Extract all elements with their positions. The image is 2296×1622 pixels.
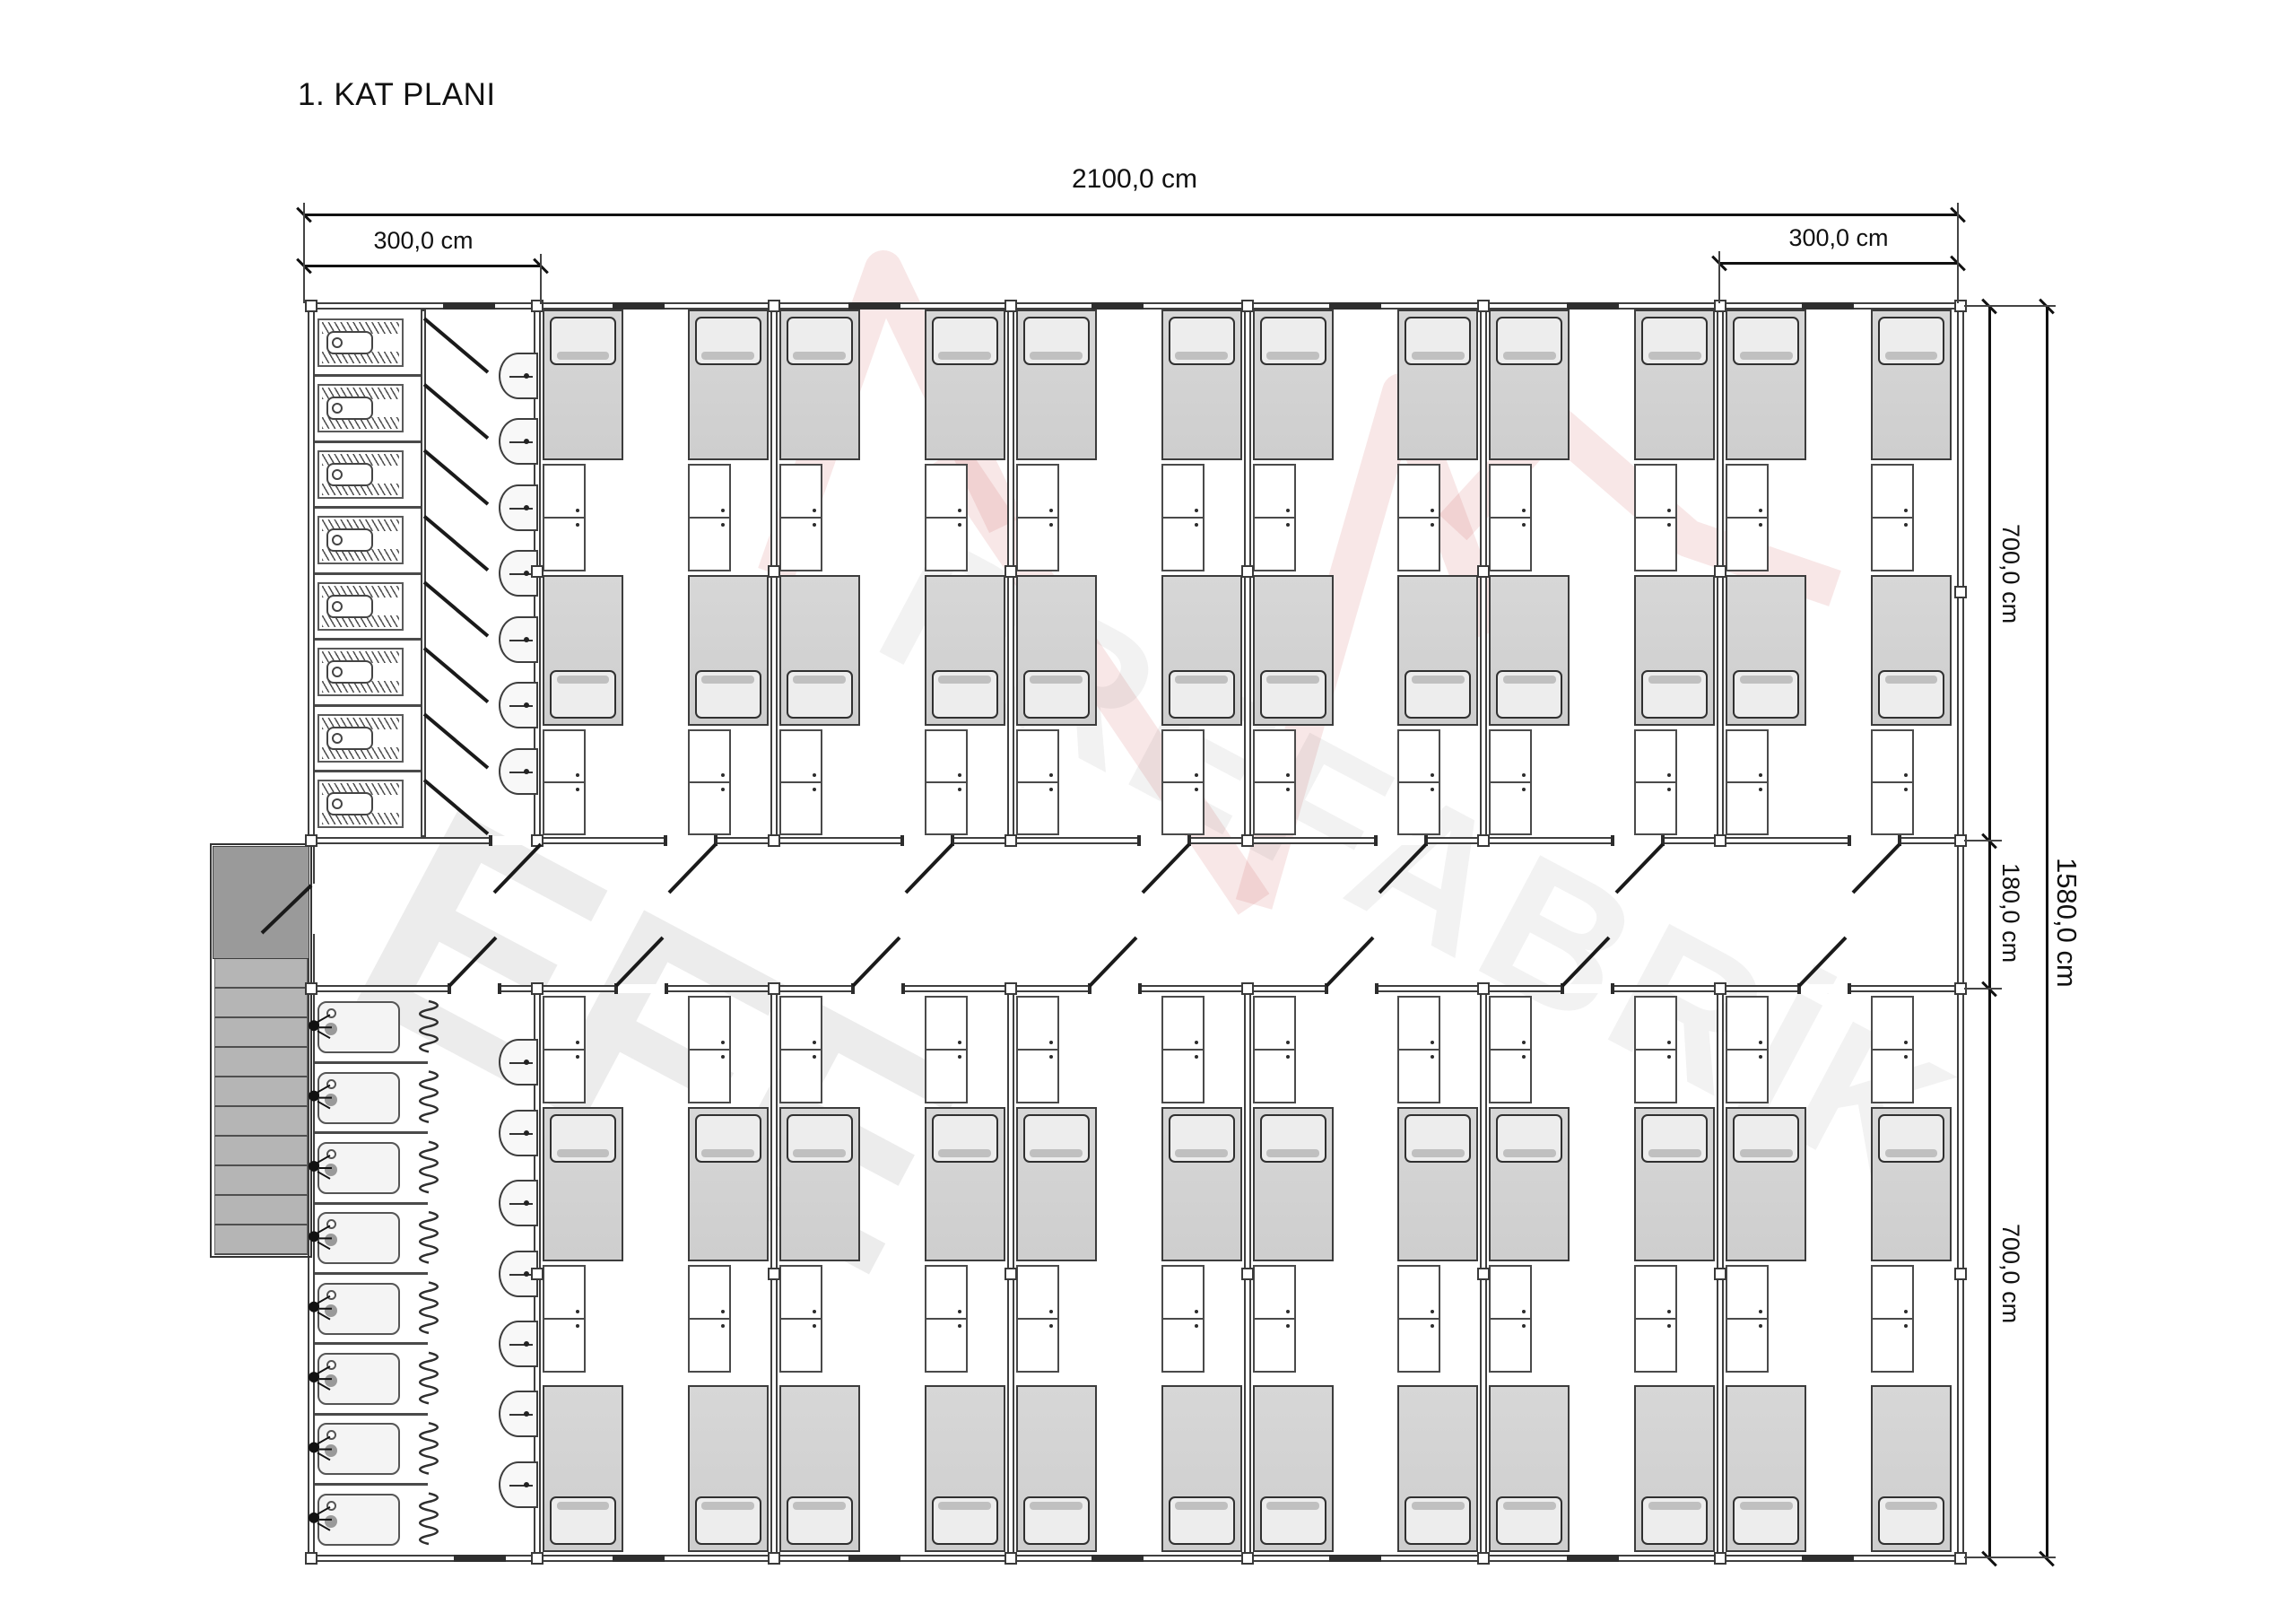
pillow-shade [793,676,846,684]
wardrobe-divider [1163,781,1203,783]
pillow-shade [1885,676,1938,684]
window [848,1555,900,1562]
wardrobe-handle [1522,773,1526,777]
wardrobe-divider [1636,781,1675,783]
door-opening [449,984,500,993]
toilet-icon [317,384,404,432]
wardrobe [779,996,822,1103]
wardrobe [925,996,968,1103]
wardrobe [1871,1265,1914,1373]
pillow-shade [557,1502,610,1510]
wall-post [305,834,317,847]
wardrobe-divider [1727,517,1767,519]
wardrobe [779,1265,822,1373]
wardrobe-divider [1873,517,1912,519]
window [443,302,495,310]
wardrobe-handle [1195,773,1198,777]
dim-right-module-width: 300,0 cm [1721,224,1956,252]
wardrobe-divider [1873,1318,1912,1320]
wardrobe [543,996,586,1103]
window [1091,302,1144,310]
pillow-shade [793,1149,846,1157]
pillow-shade [557,676,610,684]
sink-tap [524,1482,529,1487]
shower-tray-detail [326,1290,336,1300]
pillow [787,1496,853,1545]
shower-tray-detail [325,1164,337,1176]
pillow-shade [1503,352,1556,360]
wardrobe-divider [1255,517,1294,519]
wardrobe-handle [813,1055,816,1059]
wardrobe-handle [1522,523,1526,527]
bed [1871,575,1952,726]
pillow-shade [1266,1502,1319,1510]
wardrobe [925,1265,968,1373]
pillow [1405,317,1471,365]
wardrobe [1726,729,1769,835]
wardrobe-handle [958,773,961,777]
wardrobe-divider [1163,517,1203,519]
wardrobe-handle [576,1310,579,1313]
extension-line [1964,1557,2056,1558]
pillow [1733,1496,1799,1545]
pillow [1878,1114,1944,1163]
wardrobe-handle [1195,1055,1198,1059]
wall-post [1477,982,1490,995]
wardrobe-handle [1522,1324,1526,1328]
pillow-shade [701,352,754,360]
wall-post [1954,1268,1967,1280]
wardrobe-divider [690,781,729,783]
wardrobe-handle [1195,523,1198,527]
stall-divider [315,1483,428,1486]
wardrobe-handle [1431,1310,1434,1313]
dim-top-wing-depth: 700,0 cm [1996,447,2024,702]
wardrobe-handle [576,773,579,777]
wardrobe [1634,464,1677,571]
sink-tap [509,1203,533,1205]
extension-line [1718,251,1720,303]
pillow-shade [1266,352,1319,360]
wall-post [1714,834,1726,847]
wardrobe-handle [721,773,725,777]
wardrobe-handle [1049,1041,1053,1044]
pillow-shade [1412,676,1465,684]
wardrobe-divider [1636,1049,1675,1051]
pillow [1641,1114,1708,1163]
window [613,302,665,310]
sink-tap [509,1133,533,1135]
bed [779,310,860,460]
bed [1634,1385,1715,1552]
shower-tray-detail [325,1444,337,1457]
pillow [1496,1496,1562,1545]
door-jamb [1424,835,1428,846]
stall-divider [315,1342,428,1345]
wardrobe [1871,729,1914,835]
wardrobe-divider [1163,1318,1203,1320]
pillow-shade [1740,1149,1793,1157]
wardrobe-handle [1431,1041,1434,1044]
wardrobe-handle [813,509,816,512]
pillow-shade [1175,676,1228,684]
wardrobe-divider [926,1049,966,1051]
pillow [1405,1496,1471,1545]
sink-icon [499,353,538,399]
sink-tap [524,373,529,379]
door-opening [1139,836,1189,845]
wardrobe [1871,996,1914,1103]
bed [543,310,623,460]
pillow-shade [1030,1149,1083,1157]
pillow [787,1114,853,1163]
wardrobe-handle [1667,788,1671,791]
pillow [695,1114,761,1163]
door-opening [1090,984,1140,993]
dimension-line-left-module [304,265,541,267]
wardrobe-divider [1018,781,1057,783]
pillow [550,670,616,719]
pillow [1169,670,1235,719]
shower-tray-detail [326,1360,336,1370]
wardrobe-handle [813,788,816,791]
sink-icon [499,418,538,465]
stair-tread [214,1166,308,1196]
pillow [1169,1496,1235,1545]
shower-tray-detail [326,1430,336,1440]
sink-icon [499,1110,538,1156]
bed [688,1385,769,1552]
wardrobe-handle [1049,788,1053,791]
wardrobe-handle [1904,788,1908,791]
shower-tray-detail [326,1149,336,1159]
stair-tread [214,989,308,1018]
wall-post [531,565,544,578]
wall-post [1477,300,1490,312]
wardrobe [1016,1265,1059,1373]
wall-post [531,982,544,995]
pillow-shade [1030,676,1083,684]
floor-plan-canvas: 1. KAT PLANI EFE PREFABRİK 2100,0 cm 300… [0,0,2296,1622]
wardrobe-handle [1667,1310,1671,1313]
pillow-shade [1885,1502,1938,1510]
pillow [1641,317,1708,365]
door-jamb [1611,983,1614,994]
pillow-shade [1648,1502,1701,1510]
wardrobe-handle [721,509,725,512]
pillow [1260,317,1326,365]
wall-post [768,982,780,995]
bed [1397,1385,1478,1552]
wardrobe-handle [1049,1055,1053,1059]
sink-icon [499,1321,538,1367]
wardrobe-handle [1049,1310,1053,1313]
bed [1489,575,1570,726]
pillow-shade [938,352,991,360]
stall-divider [315,638,421,641]
wardrobe-divider [926,517,966,519]
toilet-icon [317,450,404,499]
door-jamb [851,983,855,994]
shower-tray-detail [325,1234,337,1246]
wall-post [1241,982,1254,995]
stall-divider [315,1131,428,1134]
pillow-shade [1175,1502,1228,1510]
pillow [1023,1114,1090,1163]
sink-tap [524,1060,529,1065]
shower-tray-detail [325,1023,337,1035]
shower-tray-detail [326,1079,336,1089]
wardrobe-divider [1399,781,1439,783]
pillow-shade [701,1502,754,1510]
wardrobe-divider [1255,1318,1294,1320]
pillow [1260,1114,1326,1163]
wardrobe-handle [1049,509,1053,512]
stair-tread [214,959,308,989]
pillow-shade [557,1149,610,1157]
wall-post [1714,1268,1726,1280]
wardrobe-handle [1667,1055,1671,1059]
wall-post [1714,1552,1726,1565]
wardrobe-handle [576,509,579,512]
bed [1726,1385,1806,1552]
pillow-shade [1030,1502,1083,1510]
sink-icon [499,682,538,728]
sink-tap [524,702,529,708]
bed [779,1385,860,1552]
wall-post [305,300,317,312]
wardrobe-handle [1286,788,1290,791]
wall-post [768,834,780,847]
bed [779,575,860,726]
pillow-shade [938,676,991,684]
sink-tap [509,1274,533,1276]
wardrobe-handle [1759,1324,1762,1328]
sink-tap [509,1062,533,1064]
bed [1253,575,1334,726]
door-opening [902,836,952,845]
wardrobe-handle [1286,509,1290,512]
wardrobe [925,729,968,835]
wardrobe-divider [544,1318,584,1320]
pillow [1260,670,1326,719]
pillow [1733,1114,1799,1163]
wardrobe [1397,996,1440,1103]
extension-line [1964,305,2056,307]
wardrobe-handle [1759,509,1762,512]
door-jamb [664,835,667,846]
door-jamb [1088,983,1091,994]
stall-divider [315,770,421,772]
bed [1161,1107,1242,1261]
door-jamb [900,835,904,846]
wardrobe-divider [1636,1318,1675,1320]
wall-post [1714,300,1726,312]
wardrobe-handle [813,1041,816,1044]
pillow [1733,317,1799,365]
sink-tap [509,441,533,443]
wardrobe-handle [1431,523,1434,527]
stair-tread [214,1048,308,1077]
shower-tray-icon [317,1212,400,1264]
wardrobe-handle [958,1324,961,1328]
wardrobe-handle [1195,1041,1198,1044]
wardrobe-handle [1431,1324,1434,1328]
pillow-shade [1740,1502,1793,1510]
door-jamb [498,983,501,994]
wardrobe [1871,464,1914,571]
door-opening [1613,836,1663,845]
wardrobe [543,729,586,835]
door-opening [1562,984,1613,993]
bed [1016,1385,1097,1552]
dim-total-width: 2100,0 cm [969,164,1300,195]
dim-bottom-wing-depth: 700,0 cm [1996,1147,2024,1401]
bed [1871,1385,1952,1552]
door-jamb [1661,835,1665,846]
stair-landing [213,846,309,959]
bed [1634,575,1715,726]
wardrobe [1489,729,1532,835]
toilet-detail [332,337,343,348]
wall-post [1477,834,1490,847]
wardrobe [1397,464,1440,571]
wardrobe-divider [781,517,821,519]
pillow [695,1496,761,1545]
shower-tray-icon [317,1072,400,1124]
shower-tray-icon [317,1001,400,1053]
bed [543,1385,623,1552]
wardrobe [1161,996,1205,1103]
sink-tap [524,1130,529,1136]
stall-divider [315,572,421,575]
wardrobe-handle [1431,1055,1434,1059]
sink-tap [524,1411,529,1417]
stair-tread [214,1107,308,1137]
wardrobe-handle [1431,788,1434,791]
wardrobe-divider [1727,781,1767,783]
pillow-shade [1175,352,1228,360]
wall-post [1004,565,1017,578]
shower-tray-icon [317,1353,400,1405]
wardrobe-handle [1195,1324,1198,1328]
wardrobe [1161,1265,1205,1373]
wall-post [1004,300,1017,312]
bed [779,1107,860,1261]
wall-post [1714,982,1726,995]
sink-tap [509,705,533,707]
extension-line [1957,203,1959,303]
wall-post [1004,982,1017,995]
door-jamb [1374,835,1378,846]
wall-post [1241,1552,1254,1565]
sink-icon [499,1039,538,1086]
pillow [1169,1114,1235,1163]
pillow [787,317,853,365]
wardrobe-handle [1667,509,1671,512]
wardrobe-handle [813,1324,816,1328]
bed [1161,1385,1242,1552]
pillow [1878,1496,1944,1545]
pillow-shade [1412,352,1465,360]
pillow-shade [1740,352,1793,360]
wardrobe [1489,1265,1532,1373]
bed [1634,310,1715,460]
wall-post [1714,565,1726,578]
pillow [1733,670,1799,719]
bed [1161,575,1242,726]
bed [1726,310,1806,460]
pillow [932,1114,998,1163]
bed [1634,1107,1715,1261]
door-jamb [448,983,451,994]
window [1329,1555,1381,1562]
pillow [932,317,998,365]
pillow [1405,670,1471,719]
wall-post [1004,834,1017,847]
wardrobe-handle [721,523,725,527]
wall-post [1241,1268,1254,1280]
sink-tap [509,772,533,773]
wardrobe-divider [1399,517,1439,519]
wardrobe-handle [1286,1041,1290,1044]
wardrobe-handle [721,1310,725,1313]
bed [1253,1107,1334,1261]
wardrobe-handle [1049,523,1053,527]
wardrobe-handle [958,509,961,512]
pillow-shade [1648,676,1701,684]
shower-tray-detail [325,1094,337,1106]
pillow-shade [1503,1502,1556,1510]
sink-tap [509,376,533,378]
bed [925,1385,1005,1552]
pillow [1023,670,1090,719]
wardrobe-divider [1018,517,1057,519]
wall-post [1004,1552,1017,1565]
pillow [1496,317,1562,365]
wardrobe-handle [721,1055,725,1059]
wardrobe-handle [1904,1310,1908,1313]
window [454,1555,506,1562]
wardrobe-handle [958,788,961,791]
window [1329,302,1381,310]
wall-post [305,982,317,995]
sink-icon [499,484,538,531]
sink-icon [499,748,538,795]
wall-post [1004,1268,1017,1280]
stall-divider [315,1202,428,1205]
wardrobe-handle [813,773,816,777]
bed [688,310,769,460]
wardrobe-divider [690,1049,729,1051]
stair-tread [214,1018,308,1048]
dim-left-module-width: 300,0 cm [306,227,541,255]
pillow [1260,1496,1326,1545]
bed [1489,1385,1570,1552]
window [1091,1555,1144,1562]
shower-tray-icon [317,1142,400,1194]
wardrobe-divider [1018,1318,1057,1320]
bed [1489,310,1570,460]
wardrobe-handle [1522,788,1526,791]
bed [925,575,1005,726]
sink-tap [509,640,533,641]
bed [1016,575,1097,726]
wardrobe-handle [721,1324,725,1328]
bed [1397,575,1478,726]
wardrobe-divider [1727,1318,1767,1320]
pillow-shade [1266,1149,1319,1157]
